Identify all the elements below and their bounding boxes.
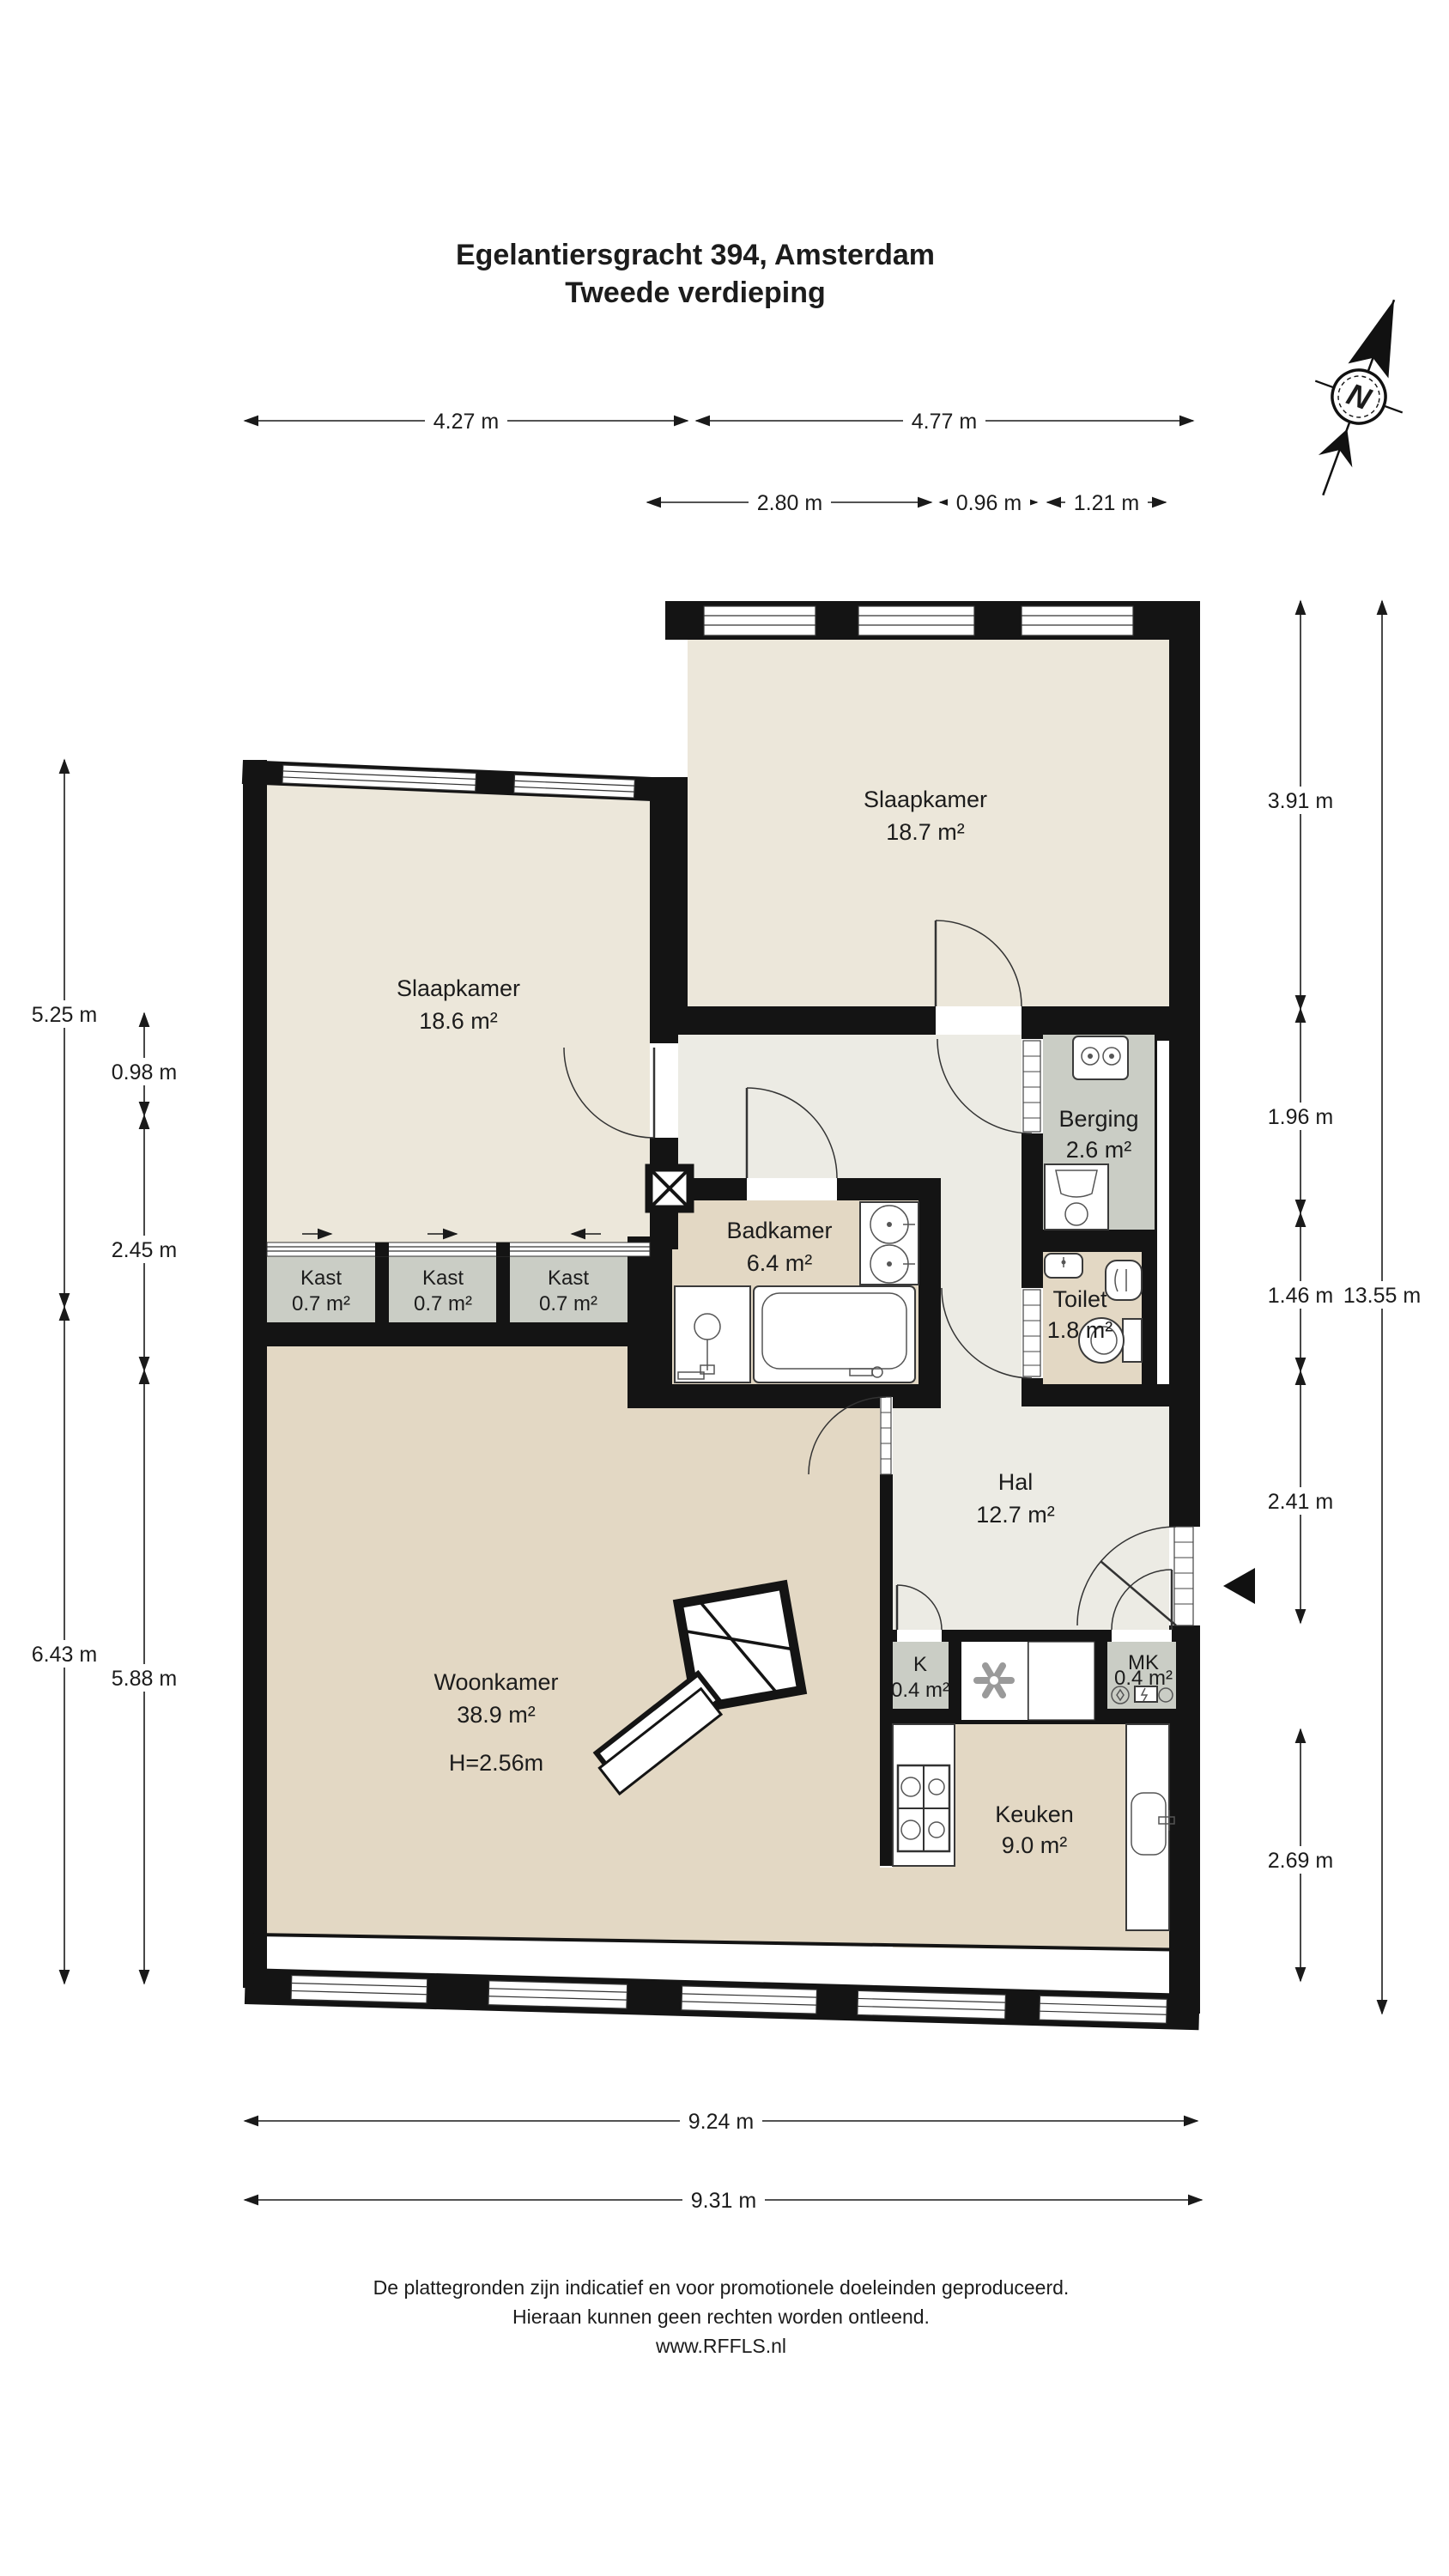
label-k-name: K: [913, 1653, 927, 1676]
dim-bottom-931: 9.31 m: [691, 2189, 756, 2213]
label-kast1-name: Kast: [300, 1267, 342, 1290]
title-line2: Tweede verdieping: [565, 276, 826, 309]
dim-left-525: 5.25 m: [32, 1003, 97, 1027]
dim-top-477: 4.77 m: [912, 410, 977, 434]
boiler-icon: [1073, 1036, 1128, 1079]
wall-outer-left: [243, 760, 267, 1988]
label-badkamer-name: Badkamer: [726, 1218, 832, 1243]
dim-left-245: 2.45 m: [112, 1238, 177, 1262]
window-slaapkamer1-1: [704, 606, 815, 635]
wall-keuken-left: [880, 1724, 893, 1866]
window-bottom-5: [1040, 1996, 1167, 2023]
wall-bedroom-divider: [650, 777, 688, 1035]
label-keuken-name: Keuken: [995, 1801, 1074, 1827]
label-toilet-area: 1.8 m²: [1047, 1317, 1113, 1343]
label-mk-area: 0.4 m²: [1114, 1667, 1173, 1690]
label-hal-area: 12.7 m²: [976, 1502, 1055, 1528]
dim-top-096: 0.96 m: [956, 491, 1022, 515]
dim-left-098: 0.98 m: [112, 1060, 177, 1084]
kast-sliding-doors: [267, 1242, 650, 1256]
footer-line3: www.RFFLS.nl: [655, 2335, 786, 2357]
wall-outer-right: [1169, 601, 1200, 2014]
dim-right-146: 1.46 m: [1268, 1284, 1333, 1308]
label-hal-name: Hal: [998, 1469, 1034, 1495]
footer-line2: Hieraan kunnen geen rechten worden ontle…: [512, 2306, 930, 2328]
label-kast2-area: 0.7 m²: [414, 1292, 472, 1315]
floorplan-page: Egelantiersgracht 394, Amsterdam Tweede …: [0, 0, 1449, 2576]
label-woonkamer-height: H=2.56m: [449, 1750, 543, 1776]
entrance-arrow-icon: [1223, 1568, 1255, 1604]
wall-berging-toilet: [1022, 1230, 1174, 1252]
shower-icon: [675, 1286, 750, 1382]
label-slaapkamer2-name: Slaapkamer: [397, 975, 520, 1001]
dim-right-196: 1.96 m: [1268, 1105, 1333, 1129]
dim-left-588: 5.88 m: [112, 1667, 177, 1691]
label-slaapkamer1-name: Slaapkamer: [864, 787, 987, 812]
wall-bottom-facade: [245, 1968, 1200, 2030]
wall-badkamer-bottom: [627, 1384, 941, 1408]
window-bottom-4: [858, 1990, 1006, 2019]
label-slaapkamer1-area: 18.7 m²: [886, 819, 965, 845]
floorplan-svg: Egelantiersgracht 394, Amsterdam Tweede …: [0, 0, 1449, 2576]
compass-north-pointer: [1348, 293, 1414, 379]
window-bottom-3: [682, 1986, 817, 2014]
label-kast1-area: 0.7 m²: [292, 1292, 350, 1315]
double-washbasin-icon: [860, 1202, 919, 1285]
compass-south-pointer: [1319, 422, 1364, 467]
bathtub-icon: [754, 1286, 915, 1382]
keuken-woonkamer-opening: [880, 1868, 893, 1943]
dim-top-427: 4.27 m: [433, 410, 499, 434]
dim-right-241: 2.41 m: [1268, 1490, 1333, 1514]
dim-left-643: 6.43 m: [32, 1643, 97, 1667]
wall-toilet-bottom: [1022, 1384, 1174, 1406]
wall-woonkamer-top: [243, 1322, 650, 1346]
label-kast3-name: Kast: [548, 1267, 589, 1290]
label-slaapkamer2-area: 18.6 m²: [419, 1008, 498, 1034]
label-kast3-area: 0.7 m²: [539, 1292, 597, 1315]
label-woonkamer-area: 38.9 m²: [457, 1702, 536, 1728]
label-kast2-name: Kast: [422, 1267, 464, 1290]
window-bottom-2: [488, 1981, 627, 2008]
wall-badkamer-right: [919, 1178, 941, 1408]
dim-top-280: 2.80 m: [757, 491, 822, 515]
label-k-area: 0.4 m²: [891, 1679, 949, 1702]
footer-line1: De plattegronden zijn indicatief en voor…: [373, 2276, 1070, 2299]
utility-box: [1028, 1642, 1094, 1720]
page-title: Egelantiersgracht 394, Amsterdam Tweede …: [456, 239, 935, 309]
dim-right-391: 3.91 m: [1268, 789, 1333, 813]
window-slaapkamer1-2: [858, 606, 974, 635]
dim-top-121: 1.21 m: [1074, 491, 1139, 515]
label-woonkamer-name: Woonkamer: [433, 1669, 558, 1695]
dim-right-269: 2.69 m: [1268, 1849, 1333, 1873]
label-berging-area: 2.6 m²: [1066, 1137, 1132, 1163]
window-slaapkamer1-3: [1022, 606, 1133, 635]
label-badkamer-area: 6.4 m²: [747, 1250, 813, 1276]
label-keuken-area: 9.0 m²: [1002, 1832, 1068, 1858]
label-berging-name: Berging: [1058, 1106, 1138, 1132]
hal-corridor-floor: [941, 1178, 1022, 1408]
label-toilet-name: Toilet: [1052, 1286, 1107, 1312]
toilet-sink-icon: [1045, 1254, 1082, 1278]
title-line1: Egelantiersgracht 394, Amsterdam: [456, 239, 935, 271]
wall-slaapkamer1-bottom: [650, 1006, 1200, 1035]
window-bottom-1: [291, 1975, 427, 2002]
toilet-basin-icon: [1106, 1261, 1142, 1300]
north-compass-icon: N: [1280, 284, 1438, 511]
washing-machine-icon: [1045, 1164, 1108, 1230]
dim-bottom-924: 9.24 m: [688, 2110, 754, 2134]
hal-upper-floor: [678, 1035, 1022, 1181]
footer-disclaimer: De plattegronden zijn indicatief en voor…: [373, 2276, 1070, 2357]
shaft-strip: [1157, 1041, 1169, 1384]
shaft-icon: [649, 1168, 690, 1209]
kitchen-sink-icon: [1126, 1724, 1174, 1930]
cooktop-icon: [893, 1724, 955, 1866]
dim-right-1355: 13.55 m: [1343, 1284, 1421, 1308]
